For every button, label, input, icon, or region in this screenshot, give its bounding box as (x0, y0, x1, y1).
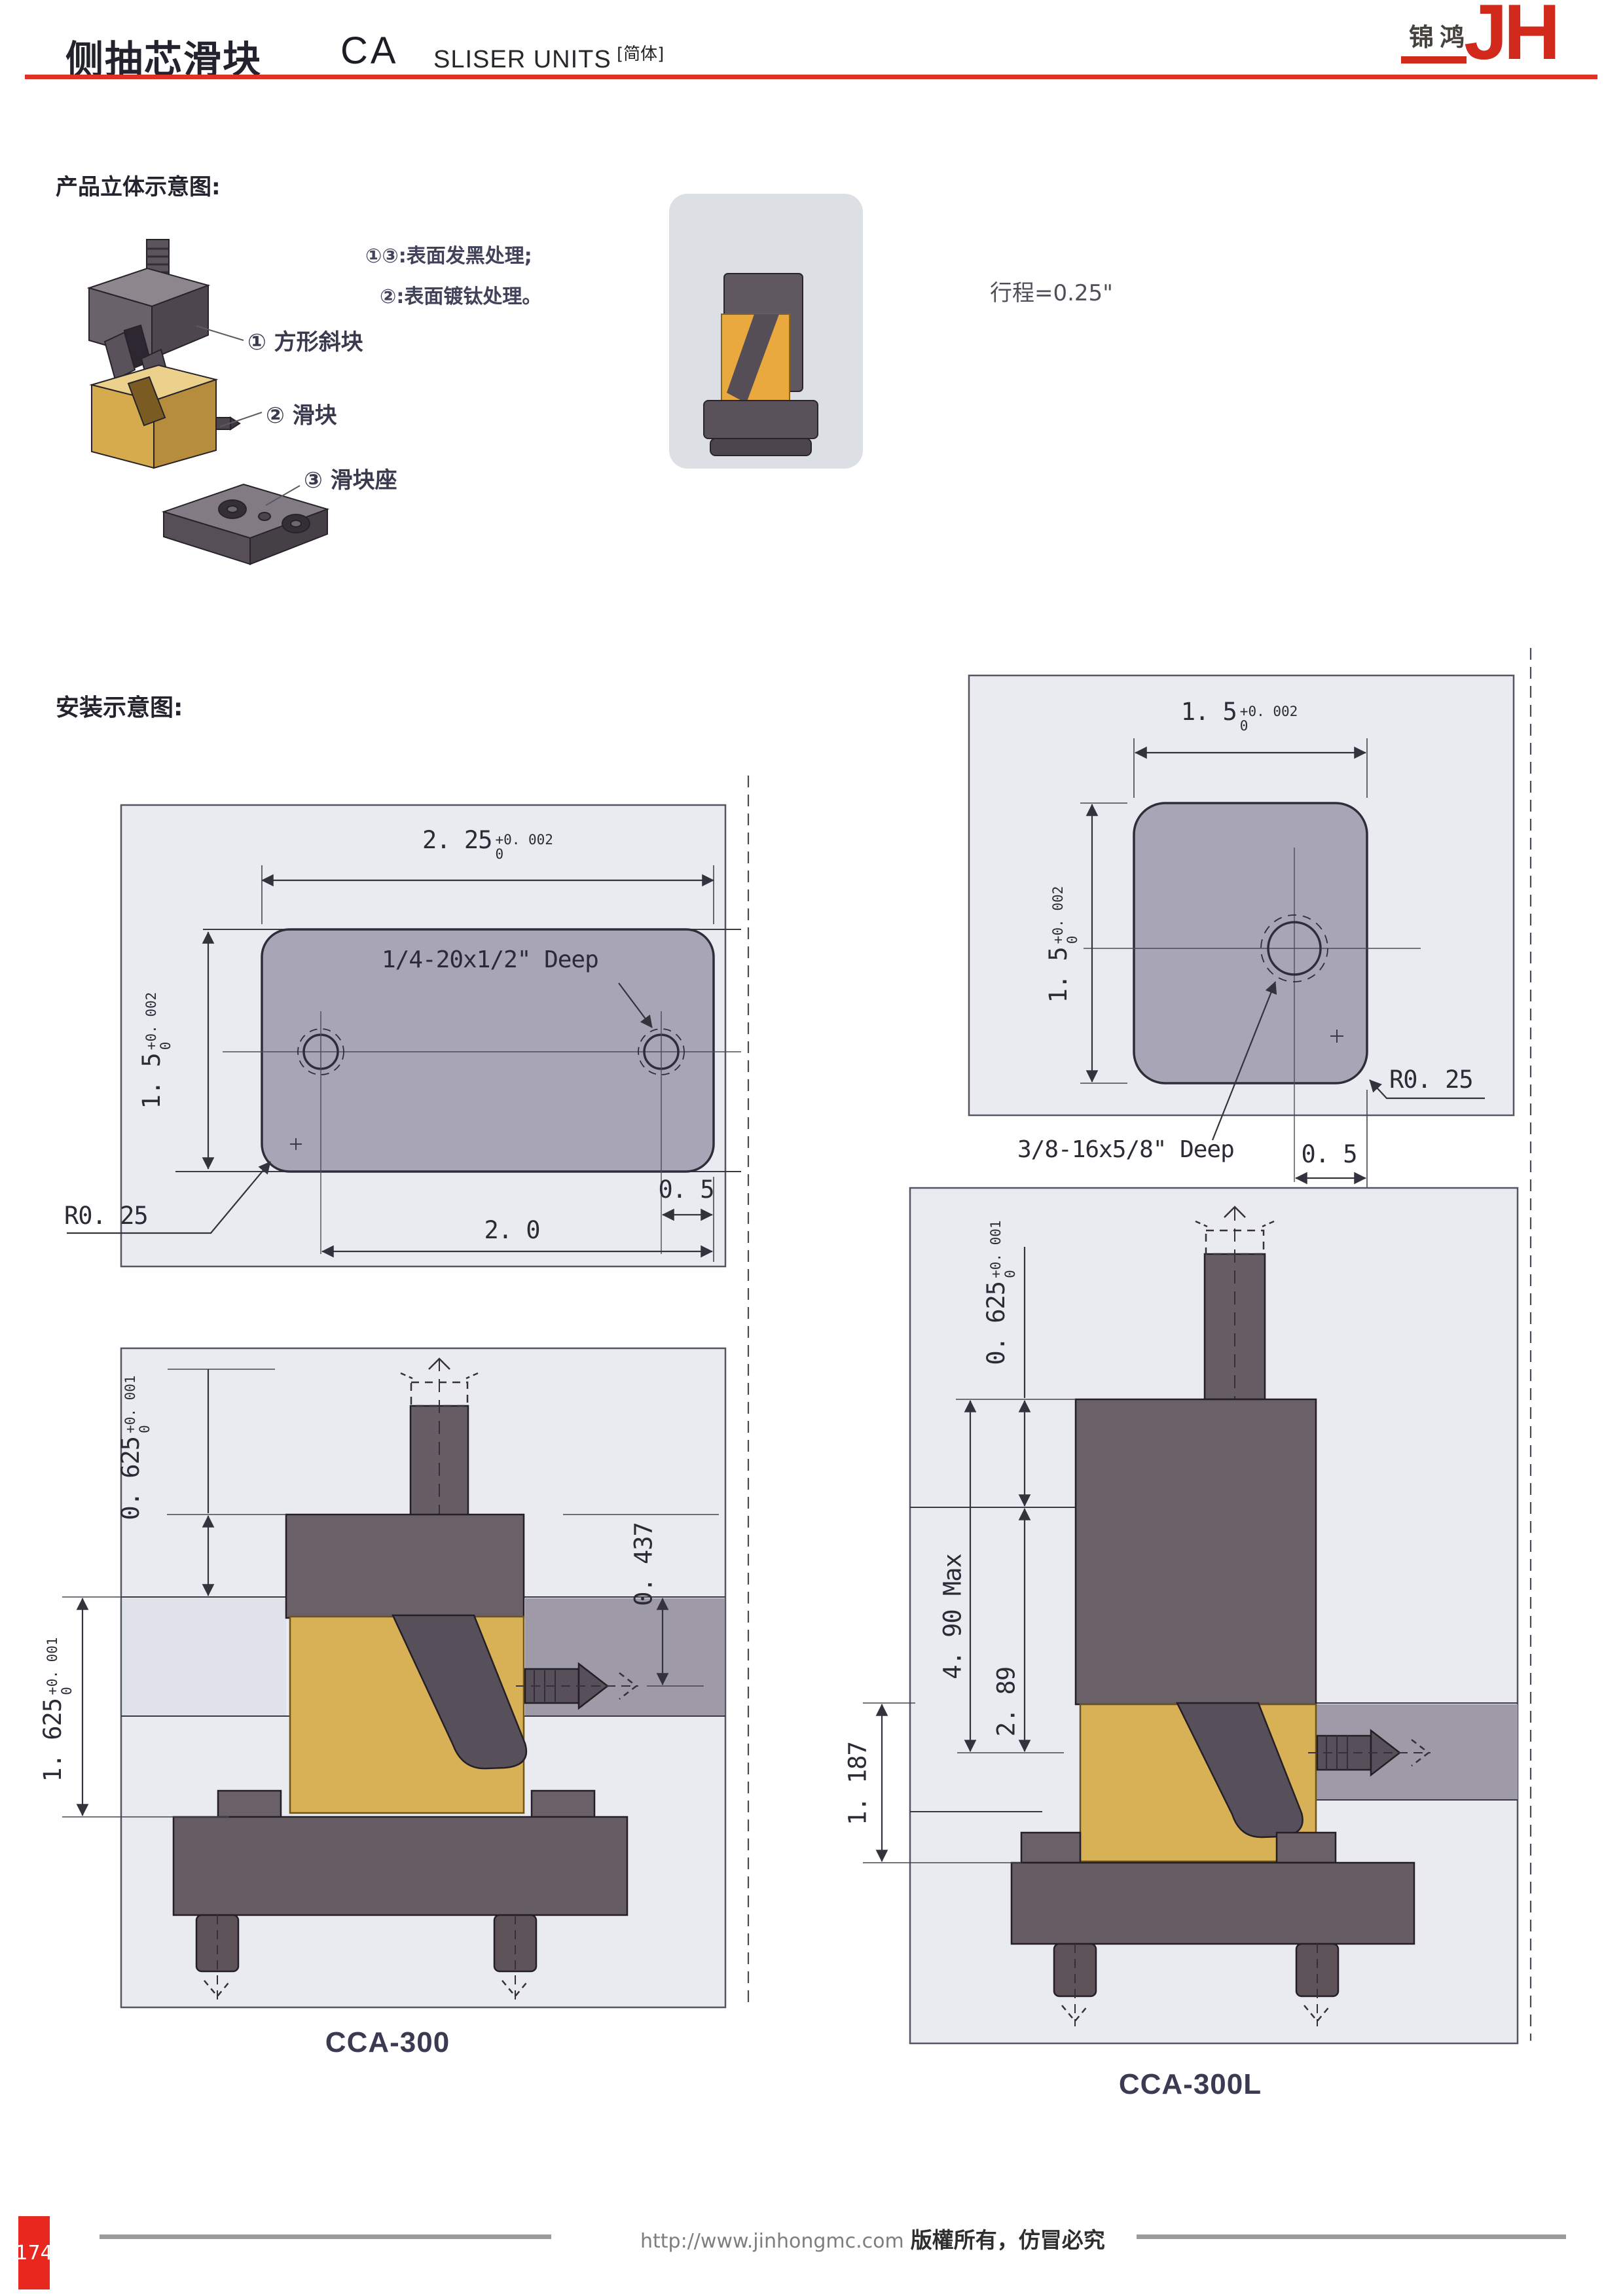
dim-edge-b: 0. 5 (1301, 1140, 1357, 1168)
surface-note-2: ②:表面镀钛处理。 (380, 280, 541, 309)
brand-logo-jh: JH (1464, 0, 1556, 77)
radius-callout-a: R0. 25 (64, 1202, 148, 1230)
surface-note-1: ①③:表面发黑处理; (365, 240, 532, 268)
install-section-heading: 安装示意图: (56, 689, 183, 723)
language-tag: [简体] (617, 41, 664, 65)
dim-pocket-a-height: 1. 5+0. 0020 (137, 992, 173, 1109)
dim-side-b-max: 4. 90 Max (939, 1554, 967, 1679)
dim-side-a-top: 0. 625+0. 0010 (117, 1375, 152, 1520)
footer-copyright: http://www.jinhongmc.com版權所有，仿冒必究 (640, 2223, 1105, 2254)
angled-block-d (1076, 1399, 1316, 1704)
footer-rule-left (100, 2234, 551, 2239)
plate-left-c (122, 1598, 286, 1715)
brand-logo-bar (1401, 56, 1467, 63)
seat-plate-c (173, 1817, 627, 1915)
thread-callout-b: 3/8-16x5/8" Deep (1017, 1136, 1234, 1163)
footer-url: http://www.jinhongmc.com (640, 2230, 904, 2253)
part-label-3: ③ 滑块座 (304, 462, 397, 494)
dim-pocket-a-width: 2. 25+0. 0020 (422, 826, 553, 861)
page-number: 174 (15, 2242, 52, 2265)
pocket-outline-b (1134, 803, 1367, 1083)
dim-side-a-drop: 0. 437 (630, 1522, 658, 1606)
footer-rights: 版權所有，仿冒必究 (911, 2227, 1105, 2253)
dim-side-a-height: 1. 625+0. 0010 (39, 1637, 74, 1782)
seat-plate-d (1012, 1863, 1414, 1944)
model-label-cca300: CCA-300 (325, 2026, 450, 2059)
header-rule (25, 75, 1597, 79)
panel-section-cca300 (62, 1348, 725, 2007)
brand-logo-cn: 锦鸿 (1409, 17, 1470, 53)
seat-shoulder-left-d (1021, 1833, 1080, 1863)
catalog-page: 侧抽芯滑块 CA SLISER UNITS [简体] 锦鸿 JH 产品立体示意图… (0, 0, 1623, 2296)
seat-shoulder-right-c (532, 1791, 594, 1818)
page-title-en: SLISER UNITS (433, 46, 611, 74)
stroke-note: 行程=0.25" (990, 275, 1113, 307)
dim-side-b-height: 1. 187 (844, 1742, 872, 1825)
angled-block-c (286, 1515, 524, 1618)
radius-callout-b: R0. 25 (1389, 1066, 1473, 1094)
drawing-canvas (0, 0, 1623, 2296)
part-label-1: ① 方形斜块 (247, 324, 363, 356)
part-label-2: ② 滑块 (266, 397, 337, 429)
footer-rule-right (1137, 2234, 1566, 2239)
dim-pocket-b-width: 1. 5+0. 0020 (1181, 698, 1298, 733)
seat-shoulder-right-d (1277, 1833, 1336, 1863)
dim-edge-a: 0. 5 (658, 1175, 714, 1204)
dim-pocket-b-height: 1. 5+0. 0020 (1044, 886, 1080, 1003)
part-slider-seat (164, 484, 327, 564)
seat-shoulder-left-c (218, 1791, 281, 1818)
page-title-code: CA (340, 29, 399, 73)
product-photo (669, 194, 863, 469)
page-number-box: 174 (18, 2216, 50, 2289)
thread-callout-a: 1/4-20x1/2" Deep (382, 946, 598, 973)
model-label-cca300l: CCA-300L (1119, 2068, 1262, 2101)
part-slider (92, 365, 240, 468)
dim-spacing-a: 2. 0 (484, 1216, 539, 1244)
dim-side-b-mid: 2. 89 (993, 1667, 1021, 1736)
dim-side-b-top: 0. 625+0. 0010 (982, 1220, 1017, 1365)
product-section-heading: 产品立体示意图: (56, 169, 221, 201)
